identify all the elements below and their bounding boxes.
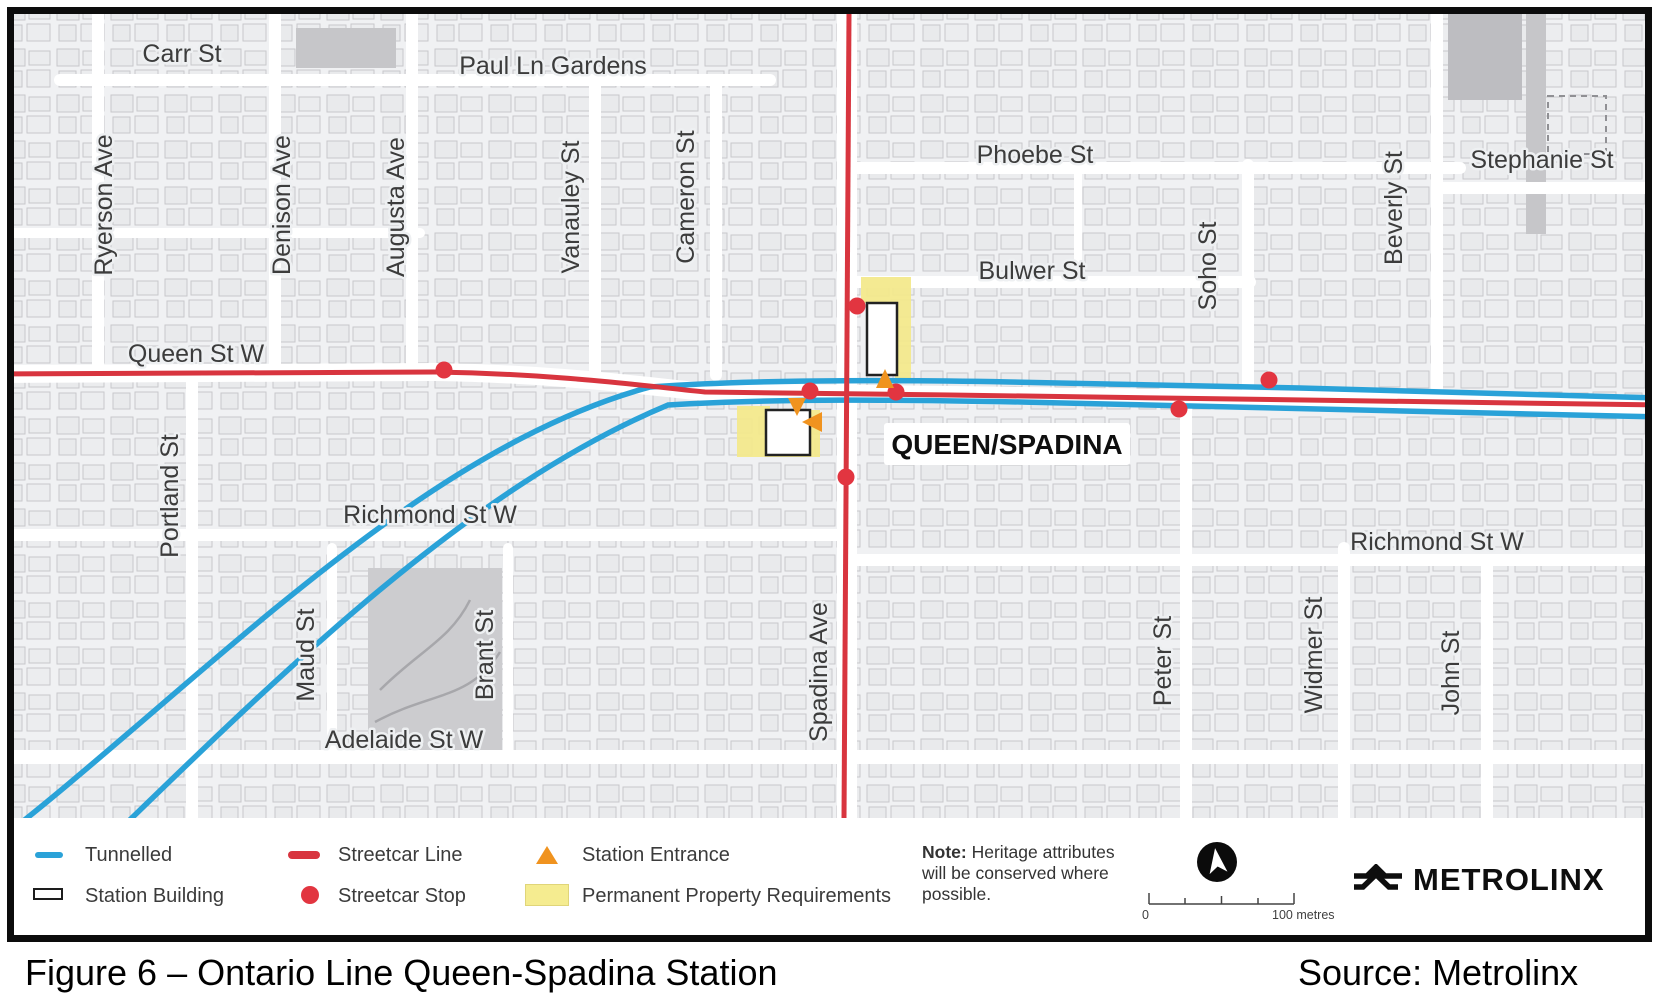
station-entrance-swatch — [536, 846, 558, 864]
street-label: Beverly St — [1380, 151, 1408, 265]
street-label: Brant St — [471, 610, 499, 700]
streetcar-line-swatch — [288, 851, 320, 859]
streetcar-stop-marker — [838, 469, 855, 486]
street-label: Soho St — [1194, 221, 1222, 310]
scale-start-label: 0 — [1142, 908, 1149, 922]
street-label: Queen St W — [128, 340, 265, 368]
street-label: Cameron St — [672, 130, 700, 263]
street-label: Paul Ln Gardens — [459, 52, 647, 80]
street-label: Richmond St W — [1350, 528, 1524, 556]
street-label: Phoebe St — [977, 141, 1094, 169]
street-label: Vanauley St — [557, 140, 585, 273]
tunnelled-line-swatch — [35, 852, 63, 858]
legend-label-streetcar-line: Streetcar Line — [338, 844, 463, 867]
station-building-swatch — [33, 888, 63, 900]
street-label: Ryerson Ave — [90, 134, 118, 275]
metrolinx-wave-icon — [1352, 864, 1404, 896]
streetcar-stop-marker — [436, 362, 453, 379]
legend-label-station-building: Station Building — [85, 885, 224, 908]
station-building-shape — [867, 303, 897, 375]
streetcar-stop-marker — [849, 298, 866, 315]
station-building-shape — [766, 410, 810, 455]
street-label: Peter St — [1149, 616, 1177, 706]
streetcar-stop-swatch — [301, 886, 319, 904]
legend-label-streetcar-stop: Streetcar Stop — [338, 885, 466, 908]
streetcar-stop-marker — [802, 383, 819, 400]
street-label: Spadina Ave — [805, 602, 833, 742]
street-label: Richmond St W — [343, 501, 517, 529]
street-label: Widmer St — [1300, 597, 1328, 714]
scale-end-label: 100 metres — [1272, 908, 1335, 922]
legend: Tunnelled Station Building Streetcar Lin… — [14, 818, 1645, 935]
map: QUEEN/SPADINA Carr StPaul Ln GardensPhoe… — [14, 14, 1645, 818]
metrolinx-logo: METROLINX — [1352, 862, 1605, 898]
streetcar-stop-marker — [1171, 401, 1188, 418]
legend-label-property: Permanent Property Requirements — [582, 885, 891, 908]
street-label: Bulwer St — [979, 257, 1086, 285]
station-name-label: QUEEN/SPADINA — [891, 429, 1122, 460]
property-swatch — [525, 884, 569, 906]
street-label: Denison Ave — [268, 135, 296, 275]
figure-caption: Figure 6 – Ontario Line Queen-Spadina St… — [25, 952, 777, 994]
street-label: John St — [1437, 631, 1465, 716]
street-label: Stephanie St — [1470, 146, 1613, 174]
figure-source: Source: Metrolinx — [1298, 952, 1578, 994]
metrolinx-logo-text: METROLINX — [1413, 862, 1605, 898]
heritage-note: Note: Heritage attributes will be conser… — [922, 842, 1117, 905]
north-arrow-icon — [1196, 841, 1238, 883]
street-label: Adelaide St W — [325, 726, 484, 754]
street-label: Carr St — [142, 40, 221, 68]
figure-page: QUEEN/SPADINA Carr StPaul Ln GardensPhoe… — [0, 0, 1659, 995]
street-label: Augusta Ave — [382, 137, 410, 277]
note-bold: Note: — [922, 842, 967, 862]
scale-bar — [1148, 888, 1295, 908]
street-label: Maud St — [292, 608, 320, 701]
street-label: Portland St — [156, 434, 184, 558]
streetcar-stop-marker — [1261, 372, 1278, 389]
legend-label-station-entrance: Station Entrance — [582, 844, 730, 867]
legend-label-tunnelled: Tunnelled — [85, 844, 172, 867]
